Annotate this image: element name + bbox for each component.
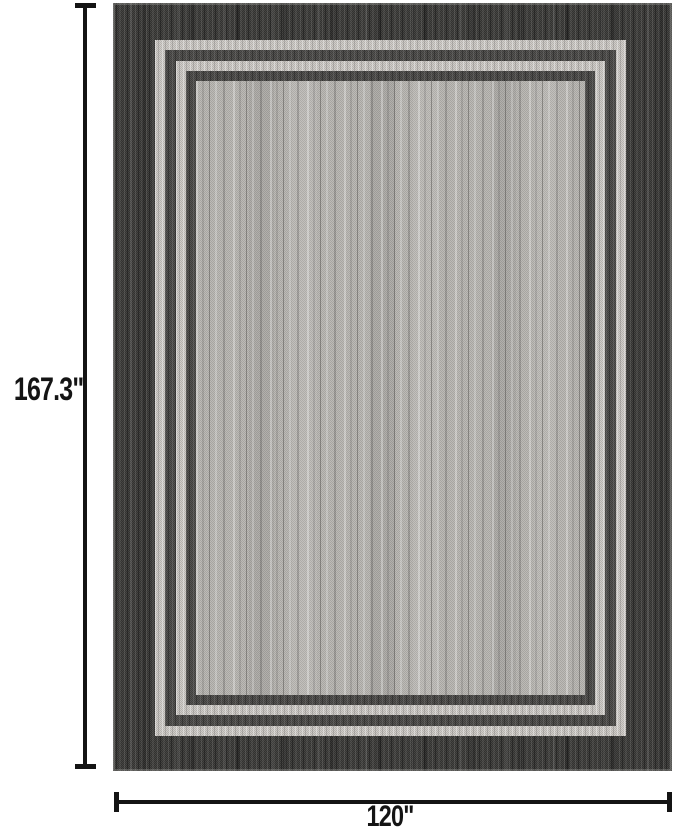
rug-frame-dark-inner — [186, 71, 595, 705]
height-dimension-cap-bottom — [75, 764, 96, 769]
product-dimension-diagram: 167.3" 120" — [0, 0, 679, 830]
rug-field — [196, 81, 585, 695]
width-dimension-label: 120" — [318, 800, 462, 830]
rug-outer-border — [113, 3, 672, 771]
height-dimension-label: 167.3" — [14, 372, 70, 407]
rug-frame-light-outer — [155, 40, 626, 736]
height-dimension-line — [83, 3, 87, 769]
width-dimension-cap-right — [667, 792, 672, 812]
rug-frame-light-inner — [176, 61, 605, 715]
width-dimension-cap-left — [114, 792, 119, 812]
rug-frame-dark-outer — [165, 50, 616, 726]
height-dimension-cap-top — [75, 3, 96, 8]
